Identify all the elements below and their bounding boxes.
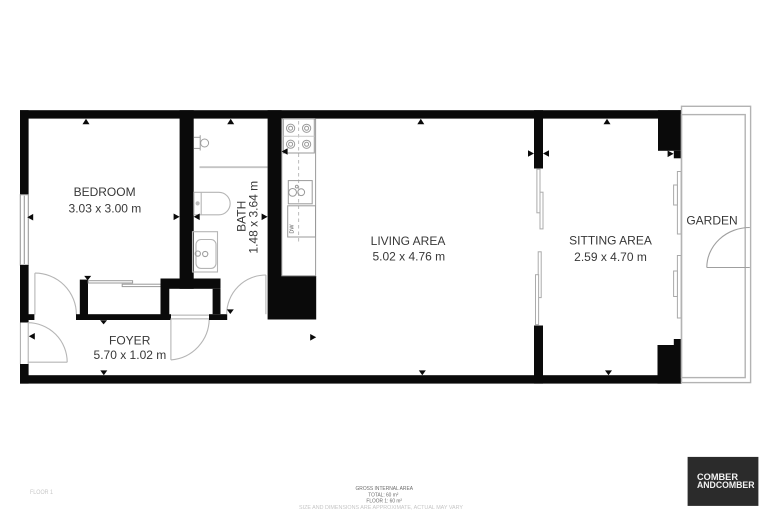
svg-text:TOTAL: 60 m²: TOTAL: 60 m² xyxy=(368,492,398,498)
svg-text:BEDROOM: BEDROOM xyxy=(74,185,136,199)
svg-text:3.03 x 3.00 m: 3.03 x 3.00 m xyxy=(69,202,142,216)
svg-text:GROSS INTERNAL AREA: GROSS INTERNAL AREA xyxy=(356,486,414,492)
svg-text:SIZE AND DIMENSIONS ARE APPROX: SIZE AND DIMENSIONS ARE APPROXIMATE, ACT… xyxy=(299,505,463,511)
svg-text:DW: DW xyxy=(290,224,296,234)
svg-text:5.02 x 4.76 m: 5.02 x 4.76 m xyxy=(372,250,445,264)
svg-text:ANDCOMBER: ANDCOMBER xyxy=(697,480,755,490)
svg-text:FLOOR 1: 60 m²: FLOOR 1: 60 m² xyxy=(366,499,402,505)
svg-text:GARDEN: GARDEN xyxy=(686,214,737,228)
svg-text:5.70 x 1.02 m: 5.70 x 1.02 m xyxy=(94,348,167,362)
svg-text:SITTING AREA: SITTING AREA xyxy=(569,233,652,247)
svg-text:FLOOR 1: FLOOR 1 xyxy=(30,490,54,496)
svg-text:LIVING AREA: LIVING AREA xyxy=(371,234,446,248)
svg-text:1.48 x 3.64 m: 1.48 x 3.64 m xyxy=(247,181,261,254)
svg-text:FOYER: FOYER xyxy=(109,333,151,347)
svg-text:2.59 x 4.70 m: 2.59 x 4.70 m xyxy=(574,250,647,264)
